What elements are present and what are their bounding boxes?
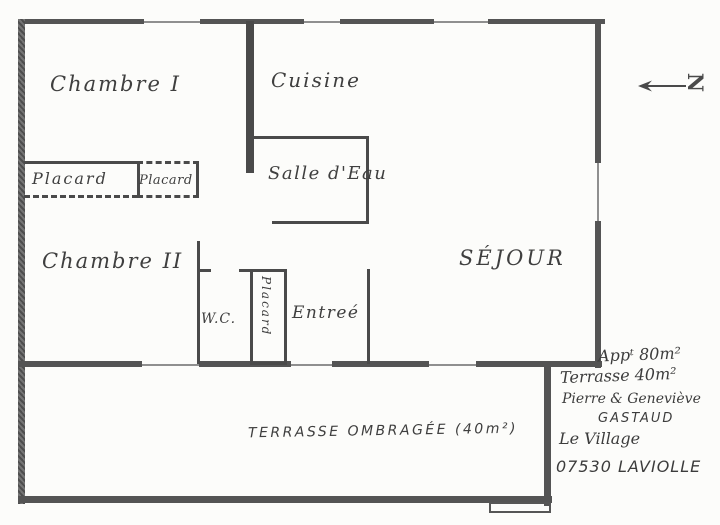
- room-label-entree: Entreé: [292, 305, 359, 322]
- note-owner-surname: GASTAUD: [598, 412, 674, 425]
- wall-wc-left: [197, 241, 200, 364]
- room-label-cuisine: Cuisine: [271, 70, 361, 90]
- wall-kitchen-partition: [246, 21, 254, 173]
- wall-bathroom-top: [252, 136, 369, 139]
- note-terrace-area: Terrasse 40m²: [560, 366, 677, 386]
- room-label-wc: W.C.: [201, 312, 236, 326]
- wall-bottom-segment: [18, 361, 142, 367]
- room-label-chambre2: Chambre II: [42, 251, 183, 272]
- wall-terrace-right: [544, 366, 551, 506]
- terrace-step: [489, 502, 551, 513]
- wall-terrace-bottom: [18, 496, 552, 503]
- closet-label-left: Placard: [32, 171, 108, 187]
- wall-bottom-segment: [332, 361, 429, 367]
- wall-entry-right: [367, 269, 370, 364]
- wall-bottom-segment: [476, 361, 602, 367]
- north-arrow-icon: [636, 77, 688, 95]
- wall-top-segment: [340, 19, 434, 24]
- floor-plan-sketch: N Chambre I Cuisine Salle d'Eau Placard …: [0, 0, 720, 525]
- room-label-chambre1: Chambre I: [50, 74, 181, 95]
- room-label-sejour: SÉJOUR: [459, 248, 566, 269]
- wall-left: [18, 19, 25, 504]
- note-apartment-area: Appᵗ 80m²: [598, 346, 682, 365]
- note-owner-names: Pierre & Geneviève: [562, 392, 701, 406]
- wall-wc-door-jamb: [197, 269, 211, 272]
- wall-top-segment: [18, 19, 144, 24]
- note-address-line: Le Village: [559, 431, 640, 447]
- closet-label-entry: Placard: [260, 276, 272, 336]
- wall-right-segment: [595, 19, 601, 163]
- wall-top-segment: [488, 19, 605, 24]
- north-letter: N: [683, 73, 708, 92]
- terrace-label: TERRASSE OMBRAGÉE (40m²): [248, 422, 518, 441]
- wall-bathroom-bottom: [272, 221, 369, 224]
- closet-label-right: Placard: [139, 174, 193, 187]
- note-postcode-city: 07530 LAVIOLLE: [556, 459, 701, 475]
- room-label-salle-eau: Salle d'Eau: [268, 165, 387, 183]
